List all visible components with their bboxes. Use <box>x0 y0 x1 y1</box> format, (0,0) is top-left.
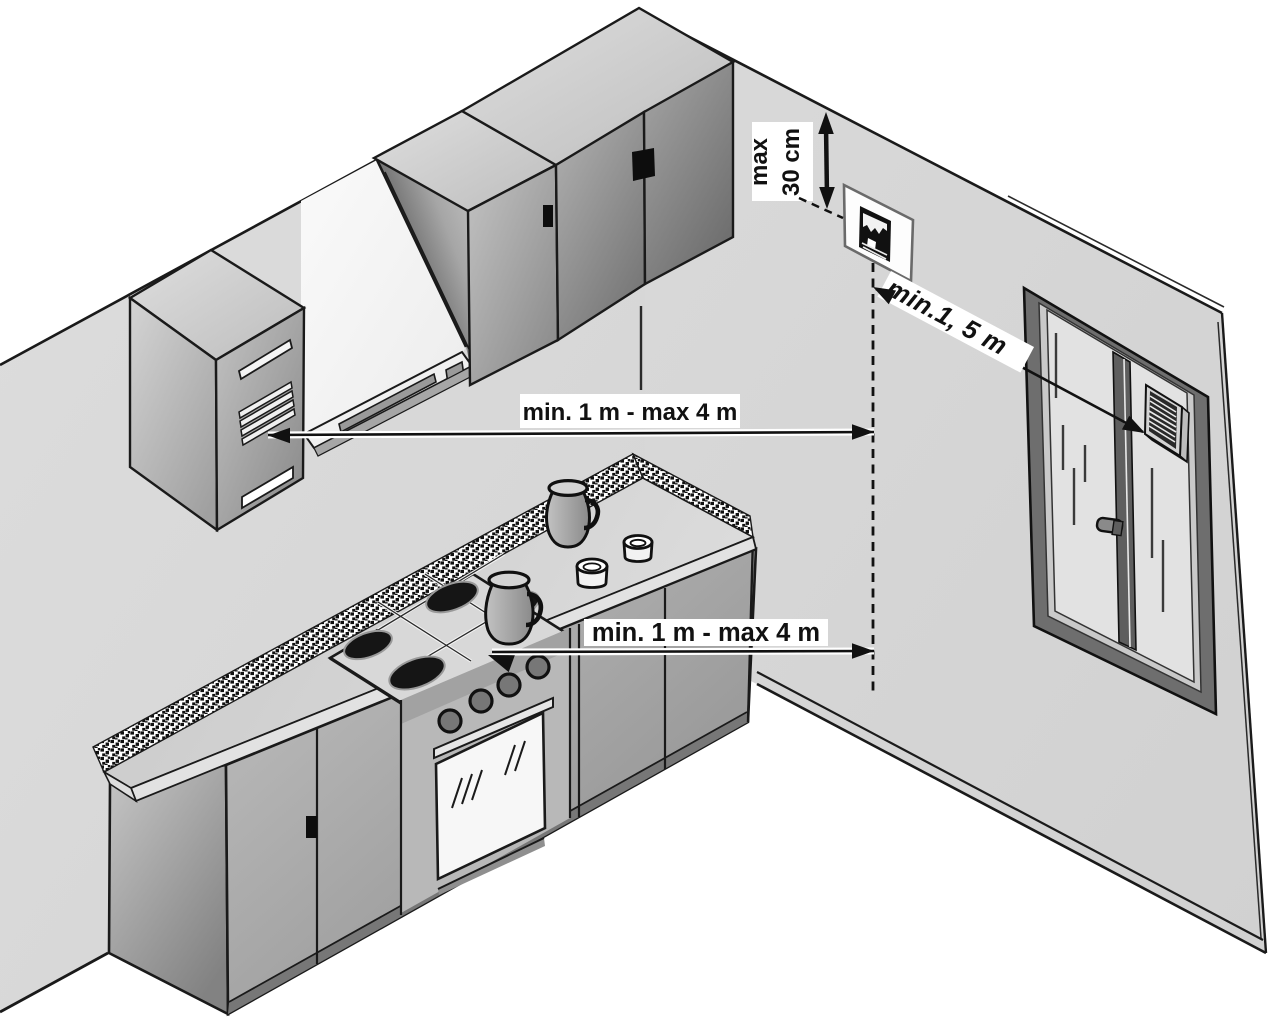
svg-text:min. 1 m - max 4 m: min. 1 m - max 4 m <box>592 619 820 647</box>
svg-text:min. 1 m - max 4 m: min. 1 m - max 4 m <box>523 399 738 426</box>
svg-text:max: max <box>746 137 773 186</box>
svg-text:30 cm: 30 cm <box>778 128 805 196</box>
